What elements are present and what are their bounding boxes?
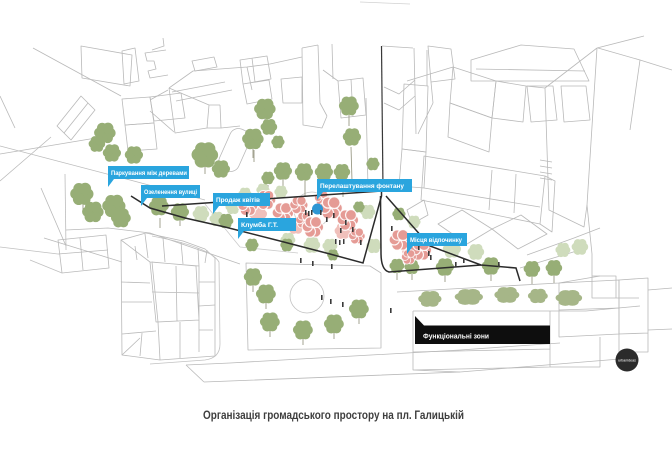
svg-text:urbanideas: urbanideas — [618, 359, 636, 363]
svg-text:Паркування між деревами: Паркування між деревами — [111, 169, 187, 177]
svg-text:Функціональні зони: Функціональні зони — [423, 332, 489, 341]
svg-text:Озеленення вулиці: Озеленення вулиці — [144, 188, 197, 196]
svg-text:Клумба Г.Т.: Клумба Г.Т. — [241, 221, 278, 229]
svg-text:Організація громадського прост: Організація громадського простору на пл.… — [203, 408, 464, 422]
svg-text:Продаж квітів: Продаж квітів — [216, 196, 260, 204]
svg-text:Місця відпочинку: Місця відпочинку — [410, 236, 462, 244]
svg-text:Перелаштування фонтану: Перелаштування фонтану — [320, 183, 404, 190]
